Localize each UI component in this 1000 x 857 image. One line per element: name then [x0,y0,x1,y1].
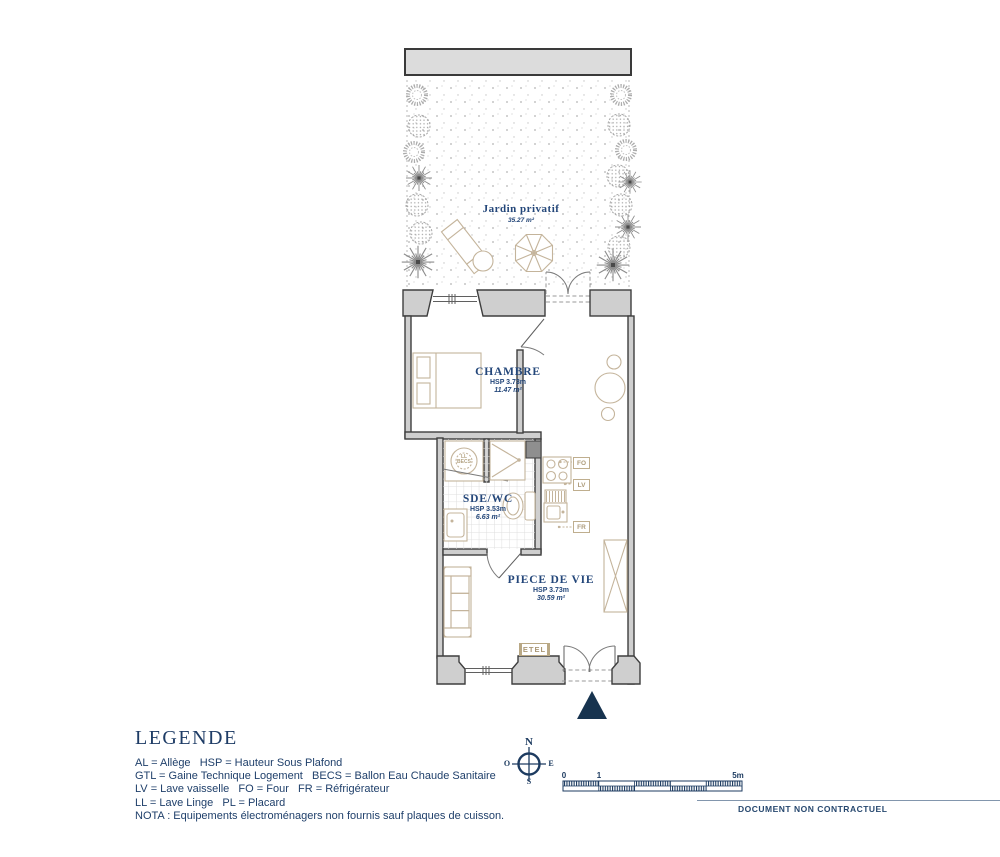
duct [526,441,541,458]
legend-line: AL = Allège HSP = Hauteur Sous Plafond [135,757,504,770]
scale-0-label: 0 [562,771,566,780]
fo-label: FO [577,460,586,467]
room-name: PIECE DE VIE [508,574,595,587]
room-area: 11.47 m² [475,387,541,395]
sofa-icon [444,567,471,637]
becs-label: BECS [457,460,471,465]
garden-area [402,77,642,289]
parasol-table-icon [516,235,553,272]
living-window [465,666,512,675]
compass-north-label: N [525,736,533,748]
legend: LEGENDE AL = Allège HSP = Hauteur Sous P… [135,727,504,823]
garden-label: Jardin privatif 35.27 m² [483,203,560,224]
bedroom-door [521,319,544,355]
floor-plan-page: Jardin privatif 35.27 m² CHAMBRE HSP 3.7… [0,0,1000,857]
fr-label: FR [577,524,586,531]
bed-icon [413,353,481,408]
compass-west-label: O [504,759,510,768]
room-area: 30.59 m² [508,595,595,603]
dining-set-icon [595,355,625,421]
garden-area: 35.27 m² [483,217,560,224]
disclaimer-text: DOCUMENT NON CONTRACTUEL [738,804,887,814]
room-label-piece-de-vie: PIECE DE VIE HSP 3.73m 30.59 m² [508,574,595,603]
lv-label: LV [578,482,586,489]
etel-label: ETEL [523,645,546,654]
kitchen [543,457,572,528]
wardrobe-icon [604,540,627,612]
bedroom-window [433,294,477,304]
refrigerateur-tag: FR [573,521,590,533]
legend-line: NOTA : Equipements électroménagers non f… [135,810,504,823]
shower-icon [490,441,525,480]
legend-lines: AL = Allège HSP = Hauteur Sous Plafond G… [135,757,504,823]
room-area: 6.63 m² [463,514,513,522]
legend-line: LV = Lave vaisselle FO = Four FR = Réfri… [135,783,504,796]
entry-door [562,646,617,681]
scale-bar [563,781,742,791]
room-name: CHAMBRE [475,366,541,379]
compass-south-label: S [527,777,531,786]
scale-1-label: 1 [597,771,601,780]
legend-line: LL = Lave Linge PL = Placard [135,797,504,810]
scale-5m-label: 5m [732,771,744,780]
top-boundary-wall [405,49,631,75]
room-name: SDE/WC [463,493,513,506]
legend-title: LEGENDE [135,727,504,750]
room-hsp: HSP 3.73m [475,379,541,387]
room-label-chambre: CHAMBRE HSP 3.73m 11.47 m² [475,366,541,395]
room-label-sdewc: SDE/WC HSP 3.53m 6.63 m² [463,493,513,522]
compass-icon [512,747,546,781]
room-hsp: HSP 3.53m [463,506,513,514]
kitchen-sink-icon [544,490,567,522]
compass-east-label: E [548,759,553,768]
cooktop-icon [543,457,571,483]
etel-tag: ETEL [519,643,550,656]
room-hsp: HSP 3.73m [508,587,595,595]
entrance-arrow-icon [577,691,607,719]
legend-line: GTL = Gaine Technique Logement BECS = Ba… [135,770,504,783]
four-tag: FO [573,457,590,469]
garden-name: Jardin privatif [483,203,560,215]
washer-label: LL BECS [457,455,471,465]
garden-table-icon [473,251,493,271]
lave-vaisselle-tag: LV [573,479,590,491]
